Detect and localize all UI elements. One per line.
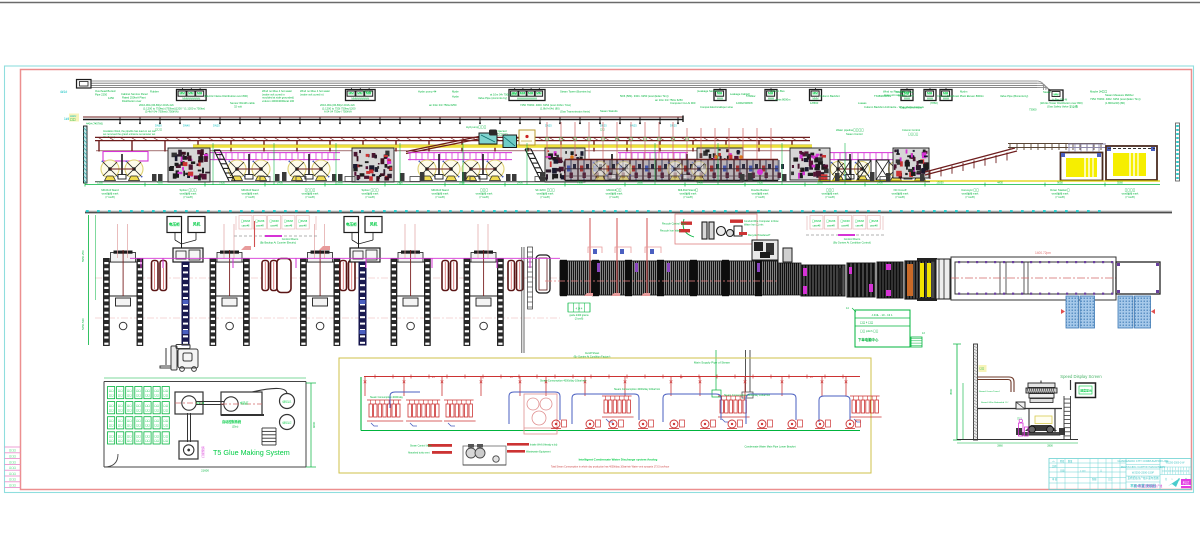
svg-text:case#8: case#8 [827, 225, 835, 228]
svg-text:Mill-Roll Stand口: Mill-Roll Stand口 [678, 188, 698, 192]
svg-text:2860: 2860 [997, 445, 1003, 448]
svg-text:Water pipeline口口口口: Water pipeline口口口口 [836, 128, 864, 132]
svg-text:Pipe 2250: Pipe 2250 [95, 93, 108, 97]
svg-text:(7 ton/8): (7 ton/8) [365, 196, 374, 199]
svg-text:Rubber: Rubber [363, 90, 372, 94]
svg-text:(7 ton/8): (7 ton/8) [755, 196, 764, 199]
svg-text:Mill-Roll Stand: Mill-Roll Stand [101, 188, 119, 192]
svg-text:口口: 口口 [145, 424, 150, 427]
svg-text:word咖哩 mark: word咖哩 mark [432, 192, 449, 196]
svg-text:口口: 口口 [118, 439, 123, 442]
svg-text:PACKAGING CARTON MACHINERY: PACKAGING CARTON MACHINERY [1121, 465, 1166, 469]
svg-text:口口口: 口口口 [9, 449, 17, 452]
svg-text:Column Broadcast Plant Eleven: Column Broadcast Plant Eleven 8000m [937, 94, 985, 98]
svg-text:Steam Control: Steam Control [846, 132, 863, 136]
svg-text:口: 口 [1100, 470, 1102, 473]
svg-text:口66/68: 口66/68 [255, 219, 265, 223]
svg-text:MMM: MMM [904, 97, 910, 100]
svg-text:口口: 口口 [154, 390, 159, 393]
svg-text:口口: 口口 [109, 439, 114, 442]
svg-text:at 10m 04r 750m 6250: at 10m 04r 750m 6250 [490, 93, 518, 97]
svg-text:13050: 13050 [936, 181, 944, 185]
svg-text:Mill-Roll口口: Mill-Roll口口 [607, 188, 622, 192]
svg-text:口66/68: 口66/68 [869, 219, 879, 223]
svg-text:(2 ton/8): (2 ton/8) [575, 318, 584, 321]
svg-text:口口: 口口 [136, 435, 141, 438]
svg-text:口口: 口口 [136, 409, 141, 412]
svg-text:(7 ton/8): (7 ton/8) [479, 196, 488, 199]
svg-text:word咖哩 mark: word咖哩 mark [752, 192, 769, 196]
svg-text:7950: 7950 [757, 181, 763, 185]
svg-text:口口: 口口 [145, 390, 150, 393]
svg-text:Mill-Roll Stand: Mill-Roll Stand [241, 188, 259, 192]
svg-text:Myde: Myde [452, 90, 459, 94]
svg-text:word咖哩 mark: word咖哩 mark [962, 192, 979, 196]
svg-text:MM: MM [812, 92, 818, 96]
svg-text:口口: 口口 [118, 409, 123, 412]
svg-text:2400: 2400 [397, 181, 403, 185]
svg-text:口口: 口口 [1017, 417, 1022, 420]
svg-text:口口口: 口口口 [9, 467, 17, 470]
svg-text:口66/68: 口66/68 [812, 219, 822, 223]
svg-text:word咖哩 mark: word咖哩 mark [537, 192, 554, 196]
svg-text:MM: MM [348, 92, 354, 96]
svg-text:口口: 口口 [154, 424, 159, 427]
svg-text:word咖哩 mark: word咖哩 mark [1122, 192, 1139, 196]
svg-text:word咖哩 mark: word咖哩 mark [606, 192, 623, 196]
svg-text:MM: MM [179, 92, 185, 96]
svg-text:Lsasas: Lsasas [858, 101, 867, 105]
svg-text:(7 ton/8): (7 ton/8) [895, 196, 904, 199]
svg-text:MM: MM [536, 92, 542, 96]
svg-text:4430: 4430 [997, 181, 1003, 185]
svg-text:口口: 口口 [145, 435, 150, 438]
svg-text:储存缸1: 储存缸1 [283, 400, 293, 404]
svg-text:word咖哩 mark: word咖哩 mark [302, 192, 319, 196]
svg-text:case#8: case#8 [841, 225, 849, 228]
svg-text:case#8: case#8 [242, 225, 250, 228]
svg-text:4#1#: 4#1# [60, 90, 67, 94]
svg-text:Mydm: Mydm [960, 90, 968, 94]
svg-text:口口口: 口口口 [9, 472, 17, 475]
svg-text:Conveyor 口口: Conveyor 口口 [961, 188, 979, 192]
svg-text:(0.4kV 04r 750kw) (750kVA): (0.4kV 04r 750kw) (750kVA) [145, 110, 179, 114]
svg-text:Steam1 Wire Bottomled ###: Steam1 Wire Bottomled ### [981, 401, 1009, 404]
svg-text:Absorbed turbo vent: Absorbed turbo vent [408, 452, 430, 455]
svg-text:口口: 口口 [163, 409, 168, 412]
svg-text:口口: 口口 [145, 405, 150, 408]
svg-text:口口: 口口 [163, 420, 168, 423]
svg-text:(7 ton/8): (7 ton/8) [1055, 196, 1064, 199]
svg-text:9050: 9050 [1057, 181, 1063, 185]
svg-text:7950: 7950 [219, 181, 225, 185]
svg-text:口口: 口口 [127, 394, 132, 397]
svg-text:2800: 2800 [1047, 445, 1053, 448]
svg-text:口66/68: 口66/68 [270, 219, 280, 223]
svg-text:(7 ton/8): (7 ton/8) [1125, 196, 1134, 199]
svg-text:口口: 口口 [127, 420, 132, 423]
svg-text:口口: 口口 [109, 420, 114, 423]
svg-text:Steam Consumption 4000t/day: Steam Consumption 4000t/day [370, 396, 404, 399]
svg-text:Water Iron 口 mix: Water Iron 口 mix [744, 223, 764, 226]
svg-text:Double Backer: Double Backer [751, 188, 769, 192]
svg-text:7352 76060. 4302. 6254 (sost (: 7352 76060. 4302. 6254 (sost (Eden Tim)) [1090, 97, 1141, 101]
svg-text:1:100: 1:100 [1080, 471, 1086, 473]
svg-text:5560: 5560 [1117, 181, 1123, 185]
svg-text:1400.72pm: 1400.72pm [1035, 251, 1051, 255]
svg-text:5250.540: 5250.540 [81, 318, 85, 330]
svg-text:(By Backup At Counter Electric: (By Backup At Counter Electric) [260, 241, 296, 245]
svg-text:电压柜: 电压柜 [346, 222, 357, 227]
svg-text:J 4/4L - 10 - 13 1: J 4/4L - 10 - 13 1 [871, 313, 892, 317]
svg-text:5980: 5980 [337, 181, 343, 185]
svg-text:口口: 口口 [127, 409, 132, 412]
svg-text:1/8660: 1/8660 [810, 101, 819, 105]
svg-text:21600: 21600 [201, 469, 209, 473]
svg-text:口66/68: 口66/68 [826, 219, 836, 223]
svg-text:word咖哩 mark: word咖哩 mark [680, 192, 697, 196]
svg-text:Steam Count: Steam Count [898, 94, 914, 98]
svg-text:广州科达瓦楞纸板生产线: 广州科达瓦楞纸板生产线 [1134, 484, 1163, 488]
svg-text:风机: 风机 [370, 222, 378, 227]
svg-text:case#8: case#8 [870, 225, 878, 228]
svg-text:口口 4 口口: 口口 4 口口 [860, 321, 874, 325]
svg-text:口口: 口口 [109, 424, 114, 427]
svg-text:口66/68: 口66/68 [298, 219, 308, 223]
svg-text:口口: 口口 [136, 394, 141, 397]
svg-text:科达: 科达 [1183, 480, 1190, 485]
svg-text:Hydm: Hydm [452, 95, 460, 99]
svg-text:(Electric Name Distribution ov: (Electric Name Distribution over 800) [204, 94, 248, 98]
svg-text:Condensate Water Main Pipe Low: Condensate Water Main Pipe Lower Bracket [744, 445, 795, 449]
svg-text:MM: MM [520, 92, 526, 96]
svg-text:MM: MM [1054, 93, 1059, 97]
svg-text:口口: 口口 [163, 439, 168, 442]
svg-text:口口: 口口 [154, 394, 159, 397]
svg-text:口口: 口口 [127, 390, 132, 393]
svg-text:Copper Sheet Bus: Copper Sheet Bus [900, 106, 923, 110]
svg-text:口口 p4mh 口口: 口口 p4mh 口口 [860, 329, 879, 333]
svg-text:NC Cut-off: NC Cut-off [894, 188, 907, 192]
svg-text:word咖哩 mark: word咖哩 mark [102, 192, 119, 196]
svg-text:word咖哩 mark: word咖哩 mark [180, 192, 197, 196]
svg-text:DN25: DN25 [670, 124, 677, 128]
svg-text:5980: 5980 [459, 181, 465, 185]
svg-text:(Leakage Sensing): (Leakage Sensing) [697, 89, 720, 93]
svg-text:口: 口 [1187, 470, 1189, 473]
svg-text:word咖哩 mark: word咖哩 mark [892, 192, 909, 196]
svg-text:口口: 口口 [136, 420, 141, 423]
svg-text:GUANGZHOU CITY CORRUGATOR LINE: GUANGZHOU CITY CORRUGATOR LINE [1118, 459, 1169, 463]
svg-text:速度显示: 速度显示 [1080, 388, 1092, 393]
svg-text:口口: 口口 [136, 424, 141, 427]
svg-text:Speed Display Screen: Speed Display Screen [1060, 374, 1102, 379]
svg-text:MMM: MMM [813, 97, 819, 100]
svg-text:T5 Glue Making System: T5 Glue Making System [213, 448, 290, 457]
svg-text:口口: 口口 [154, 439, 159, 442]
svg-text:口口: 口口 [109, 409, 114, 412]
svg-text:MMMMMMMMM: MMMMMMMMM [182, 97, 200, 100]
svg-text:口口: 口口 [154, 420, 159, 423]
svg-text:MMMMMMMMM: MMMMMMMMM [351, 97, 369, 100]
svg-text:Hyd pump口口口: Hyd pump口口口 [466, 125, 487, 129]
svg-text:口口: 口口 [163, 405, 168, 408]
svg-text:5980: 5980 [637, 181, 643, 185]
svg-text:word咖哩 mark: word咖哩 mark [362, 192, 379, 196]
svg-text:口口: 口口 [154, 405, 159, 408]
svg-text:1360: 1360 [97, 181, 103, 185]
svg-text:Distribution over: Distribution over [122, 99, 142, 103]
svg-text:口口: 口口 [127, 424, 132, 427]
svg-text:(7860): (7860) [930, 101, 938, 105]
svg-text:5560: 5560 [817, 181, 823, 185]
svg-text:4360: 4360 [157, 181, 163, 185]
svg-text:Steam Statnds: Steam Statnds [600, 109, 618, 113]
svg-text:口口: 口口 [127, 435, 132, 438]
svg-text:Cutoff Sheet: Cutoff Sheet [585, 351, 600, 355]
svg-text:Culomn Bus: Culomn Bus [770, 89, 785, 93]
svg-text:Splicer 口口口: Splicer 口口口 [179, 188, 196, 192]
svg-text:口口: 口口 [109, 435, 114, 438]
svg-text:(Gas Transmission Asrtn): (Gas Transmission Asrtn) [560, 110, 590, 114]
svg-text:(7 ton/8): (7 ton/8) [825, 196, 834, 199]
svg-text:Steam Measure Midther: Steam Measure Midther [1105, 93, 1134, 97]
svg-text:电压柜: 电压柜 [169, 222, 180, 227]
svg-text:Intelligent Condensate Water D: Intelligent Condensate Water Discharge s… [579, 458, 658, 462]
svg-text:(7 ton/8): (7 ton/8) [609, 196, 618, 199]
svg-text:口口: 口口 [118, 390, 123, 393]
svg-text:Recycle Powdered?: Recycle Powdered? [748, 234, 771, 237]
svg-text:(7 ton/8): (7 ton/8) [305, 196, 314, 199]
svg-text:口口: 口口 [109, 405, 114, 408]
svg-text:Splicer 口口口: Splicer 口口口 [361, 188, 378, 192]
svg-text:Culomn Backbnt: Culomn Backbnt [820, 94, 840, 98]
svg-text:5950.250: 5950.250 [81, 250, 85, 262]
svg-text:口口口口: 口口口口 [1125, 189, 1136, 192]
svg-text:MMM: MMM [768, 97, 774, 100]
svg-text:an 04m 04r 750w 6250: an 04m 04r 750w 6250 [429, 103, 457, 107]
svg-text:Column Plasm: Column Plasm [896, 90, 914, 94]
svg-text:口口: 口口 [136, 405, 141, 408]
svg-text:口口口: 口口口 [9, 484, 17, 487]
svg-text:2400: 2400 [877, 181, 883, 185]
svg-text:case#8: case#8 [270, 225, 278, 228]
svg-text:Leakage Cable#: Leakage Cable# [730, 92, 750, 96]
svg-text:MMM: MMM [717, 97, 723, 100]
svg-text:口口口口: 口口口口 [305, 189, 316, 192]
svg-text:口口: 口口 [1108, 478, 1112, 481]
svg-text:口口: 口口 [145, 409, 150, 412]
svg-text:口口: 口口 [118, 420, 123, 423]
svg-text:word咖哩 mark: word咖哩 mark [476, 192, 493, 196]
svg-text:自动控制系统: 自动控制系统 [222, 419, 242, 424]
svg-text:口口: 口口 [145, 420, 150, 423]
svg-text:Steam Consumption 4000t/day 10: Steam Consumption 4000t/day 10bar/min [614, 388, 661, 391]
svg-text:(make volt cured in): (make volt cured in) [300, 92, 324, 96]
svg-text:(7 ton/8): (7 ton/8) [183, 196, 192, 199]
svg-text:word咖哩 mark: word咖哩 mark [1052, 192, 1069, 196]
svg-text:瓦楞纸板生产线平面布置图: 瓦楞纸板生产线平面布置图 [1127, 476, 1159, 480]
svg-text:口: 口 [1173, 470, 1175, 473]
svg-text:口66/68: 口66/68 [855, 219, 865, 223]
svg-text:case#8: case#8 [856, 225, 864, 228]
svg-text:口口: 口口 [109, 390, 114, 393]
svg-text:Wastewater Equipment: Wastewater Equipment [526, 451, 551, 454]
svg-text:MMMMMMMMMM: MMMMMMMMMM [517, 97, 537, 100]
svg-text:口口口: 口口口 [9, 455, 17, 458]
svg-text:Steam Consumption 4000t/day 10: Steam Consumption 4000t/day 10bar/min [540, 380, 587, 383]
svg-text:口口口: 口口口 [9, 478, 17, 481]
svg-text:MM: MM [927, 92, 933, 96]
svg-text:Column Control: Column Control [902, 128, 920, 132]
svg-text:(25m): (25m) [232, 426, 238, 429]
svg-text:下单电脑中心: 下单电脑中心 [858, 337, 879, 342]
svg-text:Steam: Steam [1043, 90, 1052, 94]
svg-text:口口: 口口 [118, 394, 123, 397]
svg-text:32 volt: 32 volt [234, 104, 242, 108]
svg-text:9600: 9600 [312, 421, 316, 428]
svg-text:4#1# (7#5766): 4#1# (7#5766) [86, 122, 103, 126]
svg-text:Compat Electrical&per wine: Compat Electrical&per wine [700, 105, 734, 109]
svg-text:(Works Tower Distribution over: (Works Tower Distribution over 800) [1040, 101, 1083, 105]
svg-text:4500: 4500 [949, 388, 953, 395]
svg-text:口66/68: 口66/68 [241, 219, 251, 223]
svg-text:Steam Control Valve: Steam Control Valve [410, 445, 432, 448]
svg-text:口口: 口口 [163, 424, 168, 427]
svg-text:Intake Well (Already a lot): Intake Well (Already a lot) [530, 444, 558, 447]
svg-text:Valve Pipe (Accmnts by): Valve Pipe (Accmnts by) [478, 96, 507, 100]
svg-text:Rated 250kvA Plant: Rated 250kvA Plant [122, 96, 146, 100]
svg-text:DN25: DN25 [213, 124, 220, 128]
svg-text:(1.800x240) (80): (1.800x240) (80) [1105, 101, 1125, 105]
svg-text:(7 ton/8): (7 ton/8) [540, 196, 549, 199]
svg-text:口66/68: 口66/68 [284, 219, 294, 223]
svg-text:口口口: 口口口 [155, 128, 163, 131]
svg-text:口口: 口口 [70, 118, 76, 122]
svg-text:(Gas Safety Valve 安全阀): (Gas Safety Valve 安全阀) [1047, 105, 1078, 109]
svg-text:储存缸2: 储存缸2 [283, 421, 293, 425]
svg-text:口口口口: 口口口口 [908, 133, 919, 136]
svg-text:DN40: DN40 [183, 124, 190, 128]
svg-text:(7 ton/8): (7 ton/8) [245, 196, 254, 199]
svg-text:12062/3080/8: 12062/3080/8 [736, 101, 753, 105]
svg-text:an 10m 04r 750m 6250: an 10m 04r 750m 6250 [655, 98, 683, 102]
svg-text:1250: 1250 [108, 96, 114, 100]
svg-text:MM: MM [188, 92, 194, 96]
svg-text:口口口: 口口口 [826, 189, 834, 192]
svg-text:(7 ton/8): (7 ton/8) [105, 196, 114, 199]
svg-text:口口: 口口 [127, 439, 132, 442]
svg-text:Rubber: Rubber [150, 90, 159, 94]
svg-text:MM: MM [528, 92, 534, 96]
svg-text:word咖哩 mark: word咖哩 mark [242, 192, 259, 196]
svg-text:(1.8kV+04r) (80): (1.8kV+04r) (80) [540, 106, 560, 110]
svg-text:Down Stacker口: Down Stacker口 [1050, 188, 1070, 192]
svg-text:口口: 口口 [980, 367, 985, 370]
svg-text:Valve Pipe (Bccents.by): Valve Pipe (Bccents.by) [1000, 94, 1028, 98]
svg-text:Recycle Iron Valve: Recycle Iron Valve [660, 230, 681, 233]
svg-text:A 04 04 750w / 750kVA: A 04 04 750w / 750kVA [324, 110, 352, 114]
svg-text:口口: 口口 [163, 435, 168, 438]
svg-text:7960: 7960 [577, 181, 583, 185]
svg-text:case#8: case#8 [256, 225, 264, 228]
svg-text:Steam Tower (Bcentre.by): Steam Tower (Bcentre.by) [560, 90, 591, 94]
svg-text:Control Room: Control Room [844, 237, 861, 241]
svg-text:word咖哩 mark: word咖哩 mark [822, 192, 839, 196]
svg-text:Maybe 2#口口: Maybe 2#口口 [1090, 90, 1107, 94]
svg-text:DN25: DN25 [545, 124, 552, 128]
svg-text:口口口: 口口口 [9, 461, 17, 464]
svg-text:2400: 2400 [277, 181, 283, 185]
svg-text:口66/68: 口66/68 [841, 219, 851, 223]
svg-text:Total Steam Consumption in who: Total Steam Consumption in whole day pro… [551, 466, 670, 469]
svg-text:口口: 口口 [163, 390, 168, 393]
svg-text:volumn 4000/4000kcal 100: volumn 4000/4000kcal 100 [262, 99, 295, 103]
svg-text:Recycle Control Valve: Recycle Control Valve [662, 223, 687, 226]
svg-text:Hydm pump 4#: Hydm pump 4# [418, 90, 437, 94]
svg-text:WJ250-2500-150F: WJ250-2500-150F [1132, 471, 1155, 475]
svg-text:Overhead Buried: Overhead Buried [95, 89, 116, 93]
svg-text:Cabinet Service Panel: Cabinet Service Panel [121, 92, 148, 96]
svg-text:50/6 (584). 3301. 6250 (sost (: 50/6 (584). 3301. 6250 (sost (Eden Tim)) [620, 94, 669, 98]
svg-text:vents 8000m: vents 8000m [775, 98, 791, 102]
svg-text:Control Room: Control Room [282, 237, 299, 241]
svg-text:Steam1 Lever Trans#: Steam1 Lever Trans# [979, 390, 1001, 393]
svg-text:case#8: case#8 [299, 225, 307, 228]
svg-text:口口口: 口口口 [480, 189, 488, 192]
svg-text:4 14 4: 4 14 4 [576, 308, 583, 311]
svg-text:(7 ton/8): (7 ton/8) [683, 196, 692, 199]
svg-text:口口: 口口 [118, 405, 123, 408]
svg-text:口口: 口口 [154, 435, 159, 438]
svg-text:case#8: case#8 [285, 225, 293, 228]
svg-text:WJ250-2500-2-W: WJ250-2500-2-W [1166, 462, 1185, 465]
svg-text:guide 2400 grams: guide 2400 grams [569, 314, 589, 317]
svg-text:MM: MM [197, 92, 203, 96]
svg-text:口口: 口口 [154, 409, 159, 412]
svg-text:口口: 口口 [118, 435, 123, 438]
svg-text:打浆泵房: 打浆泵房 [200, 446, 205, 458]
svg-text:(7 ton/8): (7 ton/8) [965, 196, 974, 199]
svg-text:口口: 口口 [136, 439, 141, 442]
svg-text:2400: 2400 [697, 181, 703, 185]
svg-text:(By Gonten At Condition Contro: (By Gonten At Condition Control) [833, 241, 871, 245]
svg-text:口口: 口口 [145, 439, 150, 442]
svg-text:口口: 口口 [127, 405, 132, 408]
svg-text:风机: 风机 [193, 222, 201, 227]
svg-text:口口: 口口 [118, 424, 123, 427]
svg-text:MMM: MMM [927, 97, 933, 100]
svg-text:口口: 口口 [145, 394, 150, 397]
svg-text:口口: 口口 [163, 394, 168, 397]
svg-text:(7 ton/8): (7 ton/8) [435, 196, 444, 199]
svg-text:Main Supply Pipe of Steam: Main Supply Pipe of Steam [694, 361, 731, 365]
svg-text:成品缸: 成品缸 [240, 401, 249, 405]
svg-text:2400: 2400 [517, 181, 523, 185]
svg-text:SF-320C 口口口: SF-320C 口口口 [535, 188, 555, 192]
svg-text:case#8: case#8 [813, 225, 821, 228]
svg-text:73000: 73000 [1029, 108, 1037, 112]
svg-text:口口: 口口 [109, 394, 114, 397]
svg-text:Mill-Roll Stand: Mill-Roll Stand [431, 188, 449, 192]
svg-text:口口: 口口 [136, 390, 141, 393]
svg-text:Steam Consumption 4000t/day 10: Steam Consumption 4000t/day 10bar/min [724, 394, 771, 397]
svg-text:A-Res DN-M: A-Res DN-M [1052, 98, 1068, 102]
